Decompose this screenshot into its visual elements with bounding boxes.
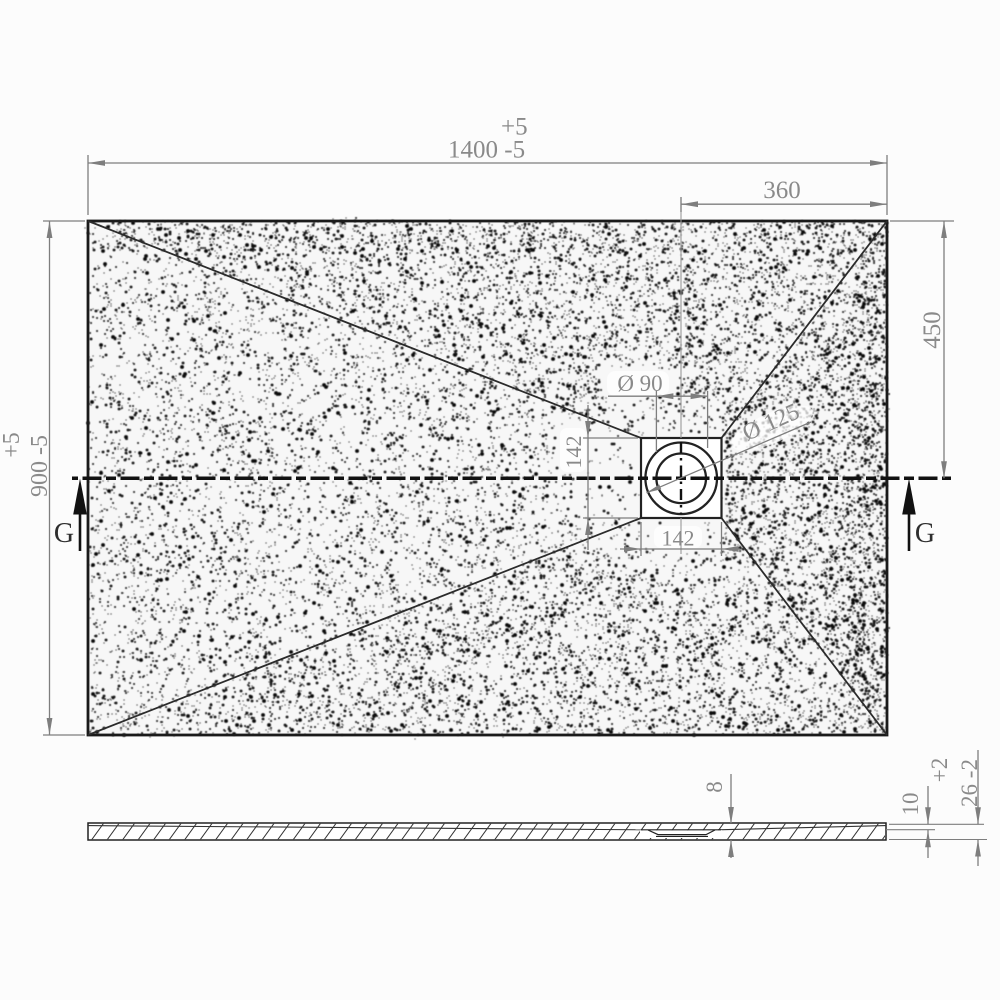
svg-text:1400 -5: 1400 -5 <box>448 137 525 164</box>
svg-text:10: 10 <box>898 793 923 816</box>
svg-text:360: 360 <box>763 177 801 204</box>
svg-text:8: 8 <box>702 781 727 793</box>
svg-text:G: G <box>54 518 74 549</box>
svg-text:G: G <box>915 518 935 549</box>
svg-text:142: 142 <box>662 526 695 551</box>
svg-text:450: 450 <box>919 311 946 349</box>
svg-text:26 -2: 26 -2 <box>957 759 982 807</box>
svg-text:+5: +5 <box>0 432 25 458</box>
svg-text:142: 142 <box>561 436 586 469</box>
svg-text:900 -5: 900 -5 <box>27 435 53 497</box>
svg-text:Ø 90: Ø 90 <box>617 371 662 396</box>
svg-text:+2: +2 <box>927 758 952 782</box>
svg-text:+5: +5 <box>501 114 528 141</box>
